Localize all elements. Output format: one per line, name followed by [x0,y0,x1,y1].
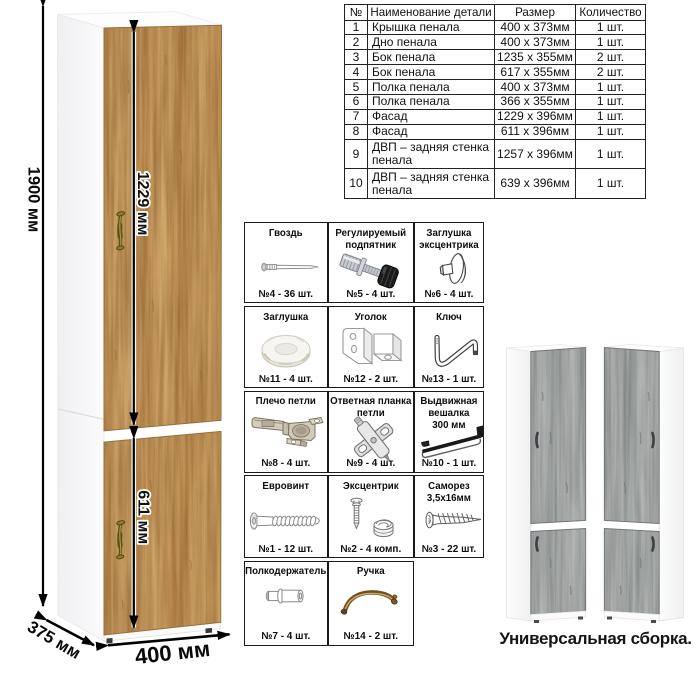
svg-text:1900 мм: 1900 мм [25,167,43,233]
svg-text:1229 мм: 1229 мм [134,172,151,236]
svg-text:611 мм: 611 мм [135,490,152,544]
